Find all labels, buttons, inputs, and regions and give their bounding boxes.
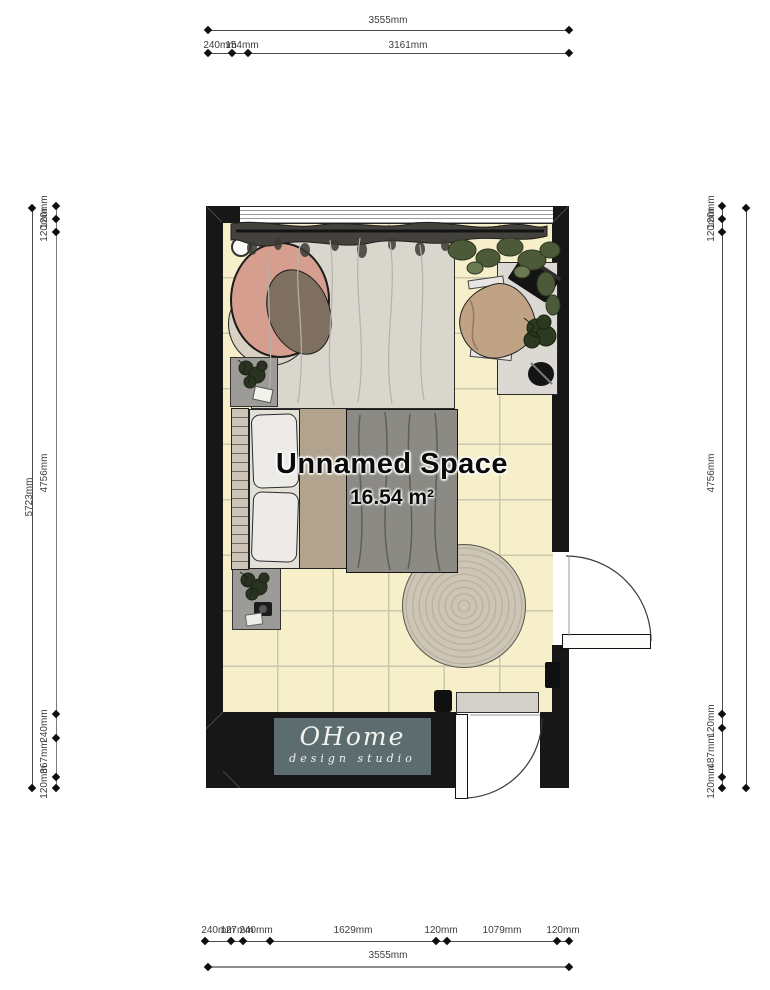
dim-line-left-segments [56,206,57,788]
door-threshold [456,692,539,713]
armchair[interactable] [228,240,336,368]
dim-tick [565,26,573,34]
dim-tick [742,784,750,792]
dim-tick [28,204,36,212]
dim-line-top-total [208,30,569,31]
room-area: 16.54 m² [262,486,522,510]
studio-name: OHome [274,722,431,751]
studio-subtitle: design studio [274,752,431,765]
dim-line-right-segments [722,206,723,788]
dim-label: 3555mm [338,950,438,962]
dim-tick [718,710,726,718]
dim-tick [718,773,726,781]
dim-tick [718,215,726,223]
wall-fixture [545,662,560,688]
dim-label: 5723mm [24,457,36,537]
dim-tick [227,937,235,945]
dim-label: 4756mm [706,443,718,503]
dim-line-right-total [746,208,747,788]
dim-tick [239,937,247,945]
dim-tick [52,773,60,781]
window[interactable] [240,206,553,224]
dim-tick [718,784,726,792]
dim-label: 154mm [214,40,270,52]
dim-tick [565,49,573,57]
floorplan-canvas: 3555mm 240mm 154mm 3161mm 240mm 127mm 24… [0,0,770,990]
dim-tick [718,202,726,210]
room-name[interactable]: Unnamed Space [262,448,522,481]
dim-tick [718,228,726,236]
studio-watermark: OHome design studio [272,716,433,777]
dim-tick [201,937,209,945]
floor-lamp[interactable] [231,237,251,257]
dim-tick [718,724,726,732]
dim-tick [742,204,750,212]
dim-label: 120mm [706,752,718,812]
dim-label: 120mm [535,925,591,937]
dim-line-bottom-segments [205,941,569,942]
dim-tick [52,710,60,718]
door-bottom-swing-arc [468,718,542,798]
dim-line-bottom-total [208,966,569,968]
dim-tick [553,937,561,945]
dim-tick [52,734,60,742]
dim-label: 3555mm [338,15,438,27]
wall-bottom-right [540,712,569,788]
room-label[interactable]: Unnamed Space 16.54 m² [262,448,522,510]
door-bottom-leaf[interactable] [455,714,468,799]
dim-tick [204,26,212,34]
dim-label: 240mm [228,925,284,937]
dim-tick [266,937,274,945]
door-right-leaf[interactable] [562,634,651,649]
dim-label: 120mm [39,752,51,812]
dim-tick [52,784,60,792]
nightstand-bottom[interactable] [232,566,281,630]
dim-label: 3161mm [358,40,458,52]
dim-tick [52,228,60,236]
dim-tick [28,784,36,792]
dim-line-top-segments [208,53,569,54]
dim-tick [565,963,573,971]
dim-label: 120mm [706,195,718,255]
dim-label: 120mm [39,195,51,255]
dim-tick [204,963,212,971]
dim-label: 1629mm [303,925,403,937]
dim-label: 4756mm [39,443,51,503]
floor-fixture [434,690,452,712]
dim-tick [52,202,60,210]
door-right-swing-arc [566,556,651,641]
dim-tick [432,937,440,945]
nightstand-top[interactable] [230,357,278,407]
wall-left [206,206,223,712]
bed-headboard [231,408,249,570]
dim-tick [565,937,573,945]
dim-tick [443,937,451,945]
dim-tick [52,215,60,223]
